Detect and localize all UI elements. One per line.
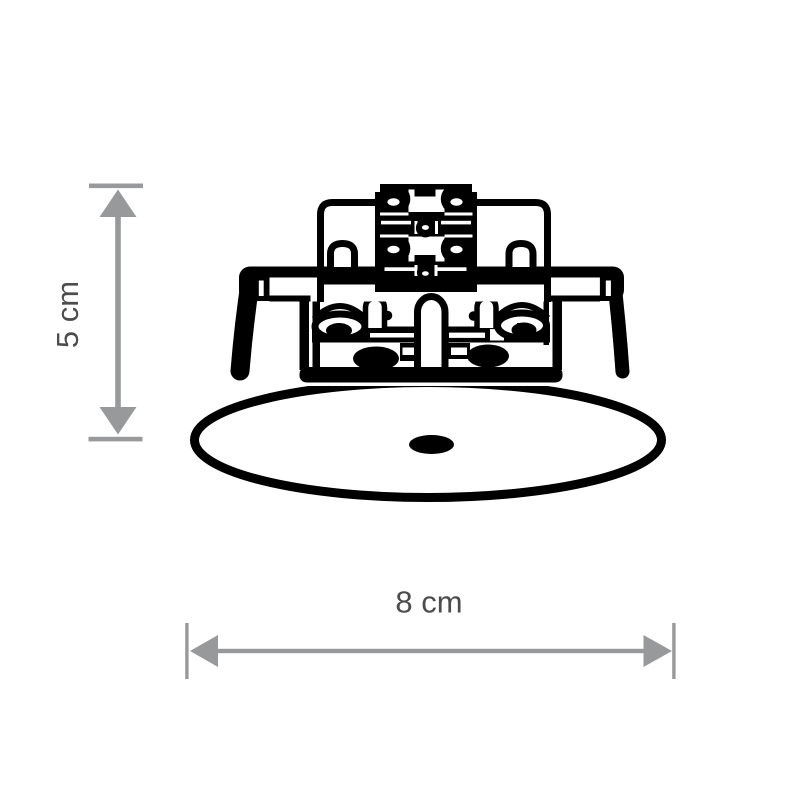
svg-text:5 cm: 5 cm bbox=[50, 281, 85, 348]
svg-text:8 cm: 8 cm bbox=[395, 585, 462, 620]
